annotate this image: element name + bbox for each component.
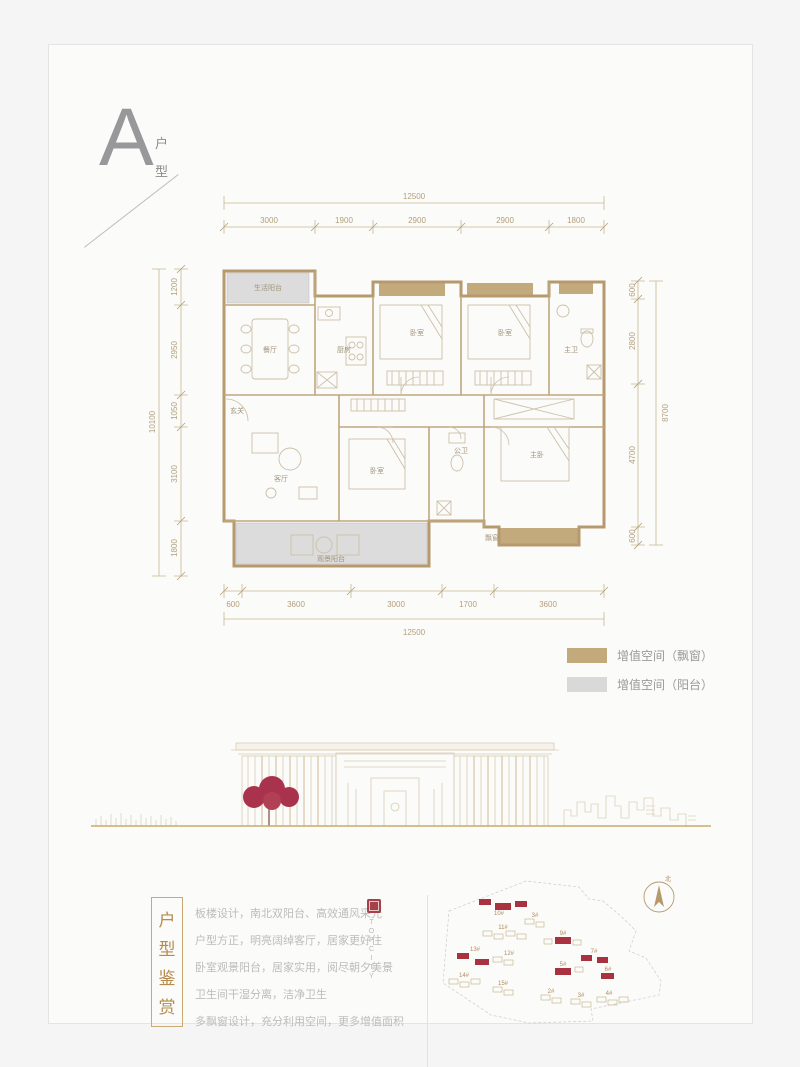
legend-item-bay: 增值空间（飘窗） — [567, 647, 713, 664]
tree — [243, 776, 299, 826]
site-plan: 10# 3# 11# 9# 13# 12# 7# 5# 6# 14# 15# 2… — [431, 863, 707, 1028]
dim-bot-seg0: 600 — [226, 600, 240, 609]
city-skyline — [564, 796, 696, 827]
dim-top-seg0: 3000 — [260, 216, 278, 225]
feature-line-1: 板楼设计，南北双阳台、高效通风采光 — [195, 901, 425, 928]
compass-icon: 北 — [644, 875, 674, 912]
bldg-label-3b: 3# — [578, 993, 585, 999]
title-char-4: 赏 — [159, 993, 176, 1018]
dim-left-seg3: 3100 — [170, 465, 179, 483]
room-bay-window-label: 飘窗 — [485, 533, 499, 542]
unit-letter: A — [99, 97, 154, 179]
bay-window-3 — [559, 283, 593, 294]
appreciation-lines: 板楼设计，南北双阳台、高效通风采光 户型方正，明亮阔绰客厅，居家更好住 卧室观景… — [195, 901, 425, 1036]
dim-right-seg0: 600 — [628, 283, 637, 297]
room-master-bedroom: 主卧 — [530, 450, 544, 459]
walls — [224, 271, 604, 566]
bay-window-2 — [467, 283, 533, 296]
unit-type-char-2: 型 — [155, 161, 169, 180]
furniture — [241, 305, 601, 555]
bldg-label-15: 15# — [498, 981, 509, 987]
room-master-bath: 主卫 — [564, 345, 578, 354]
dim-left-seg1: 2950 — [170, 341, 179, 359]
elevation-illustration — [86, 723, 716, 831]
bldg-label-11: 11# — [498, 925, 508, 931]
dim-bot-seg3: 1700 — [459, 600, 477, 609]
bldg-label-12: 12# — [504, 951, 515, 957]
dim-right-total: 8700 — [661, 404, 670, 422]
dim-bot-seg2: 3000 — [387, 600, 405, 609]
room-foyer: 玄关 — [230, 406, 244, 415]
bldg-label-9: 9# — [560, 931, 567, 937]
legend-swatch-bay — [567, 648, 607, 663]
dim-left-seg0: 1200 — [170, 278, 179, 296]
brand-seal-icon — [367, 899, 381, 913]
bldg-label-10: 10# — [494, 911, 505, 917]
dim-right-seg3: 600 — [628, 529, 637, 543]
room-kitchen: 厨房 — [337, 345, 351, 354]
unit-type-char-1: 户 — [155, 133, 169, 152]
room-view-balcony: 观景阳台 — [317, 554, 345, 563]
dim-left-seg4: 1800 — [170, 539, 179, 557]
dim-top-seg4: 1800 — [567, 216, 585, 225]
dim-bot-total: 12500 — [403, 628, 426, 637]
legend-swatch-balcony — [567, 677, 607, 692]
bldg-label-6: 6# — [605, 967, 612, 973]
legend-item-balcony: 增值空间（阳台） — [567, 676, 713, 693]
appreciation-title: 户 型 鉴 赏 — [151, 897, 183, 1027]
title-char-3: 鉴 — [159, 964, 176, 989]
dim-right-seg2: 4700 — [628, 446, 637, 464]
room-bedroom-a: 卧室 — [410, 328, 424, 337]
brand-vertical-text: TOPCITY — [368, 919, 375, 982]
feature-line-3: 卧室观景阳台，居家实用，阅尽朝夕美景 — [195, 955, 425, 982]
bldg-label-4: 4# — [606, 991, 613, 997]
room-bedroom-c: 卧室 — [370, 466, 384, 475]
bldg-label-13: 13# — [470, 947, 481, 953]
title-char-1: 户 — [159, 906, 176, 931]
dim-top-total: 12500 — [403, 192, 426, 201]
room-service-balcony: 生活阳台 — [254, 283, 282, 292]
dim-top-seg1: 1900 — [335, 216, 353, 225]
grass — [96, 813, 176, 826]
dim-top-seg3: 2900 — [496, 216, 514, 225]
bldg-label-5: 5# — [560, 962, 567, 968]
room-bath: 公卫 — [454, 447, 468, 455]
highlighted-buildings — [457, 899, 614, 979]
room-living: 客厅 — [274, 474, 288, 483]
title-char-2: 型 — [159, 935, 176, 960]
dim-bot-seg4: 3600 — [539, 600, 557, 609]
dim-top-seg2: 2900 — [408, 216, 426, 225]
bay-window-4 — [499, 528, 579, 544]
brochure-card: A 户 型 — [48, 44, 753, 1024]
feature-line-5: 多飘窗设计，充分利用空间，更多增值面积 — [195, 1009, 425, 1036]
floor-plan: 12500 3000 1900 2900 2900 1800 600 3600 … — [149, 187, 674, 647]
page: { "header": { "unit_letter": "A", "unit_… — [0, 0, 800, 1067]
bldg-label-14: 14# — [459, 973, 470, 979]
legend: 增值空间（飘窗） 增值空间（阳台） — [567, 647, 713, 693]
bldg-label-7: 7# — [591, 949, 598, 955]
dim-bot-seg1: 3600 — [287, 600, 305, 609]
legend-label-bay: 增值空间（飘窗） — [617, 647, 713, 664]
bay-window-areas — [379, 283, 593, 544]
section-divider — [427, 895, 428, 1067]
feature-line-2: 户型方正，明亮阔绰客厅，居家更好住 — [195, 928, 425, 955]
dim-left-total: 10100 — [149, 410, 157, 433]
bay-window-1 — [379, 283, 445, 296]
dim-right-seg1: 2800 — [628, 332, 637, 350]
feature-line-4: 卫生间干湿分离，洁净卫生 — [195, 982, 425, 1009]
bldg-label-3a: 3# — [532, 913, 539, 919]
unit-type-label: 户 型 — [155, 133, 169, 180]
north-label: 北 — [665, 875, 671, 883]
dimension-labels: 12500 3000 1900 2900 2900 1800 600 3600 … — [149, 192, 670, 637]
bldg-label-2: 2# — [548, 989, 555, 995]
legend-label-balcony: 增值空间（阳台） — [617, 676, 713, 693]
dim-left-seg2: 1050 — [170, 402, 179, 420]
room-dining: 餐厅 — [263, 345, 277, 354]
room-bedroom-b: 卧室 — [498, 328, 512, 337]
